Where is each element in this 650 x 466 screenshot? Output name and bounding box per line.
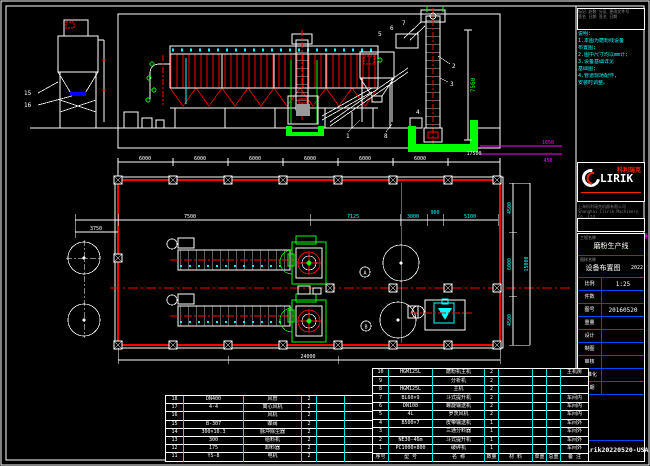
bom-cell [533, 377, 547, 385]
bom-cell [499, 411, 533, 419]
pit-dims: 1650 450 [480, 140, 562, 164]
bom-cell: 175 [184, 445, 244, 453]
logo-underline [581, 192, 641, 193]
bom-cell [547, 377, 561, 385]
bom-cell [547, 419, 561, 427]
bom-cell: 12 [166, 445, 184, 453]
bom-cell: 2 [485, 402, 499, 410]
bom-row: 3三通分料器1车间外 [373, 428, 589, 436]
bom-cell: 9 [373, 377, 389, 385]
bom-cell [317, 428, 345, 436]
bom-cell: 2 [302, 436, 317, 444]
company-info: 上海科利瑞克机器有限公司 Shanghai Clirik Machinery C… [578, 204, 644, 219]
svg-text:4500: 4500 [507, 314, 513, 326]
svg-text:6000: 6000 [414, 156, 426, 162]
bom-cell: 15 [166, 420, 184, 428]
bom-cell: 破碎机 [433, 445, 485, 453]
bom-cell [533, 436, 547, 444]
bom-cell [389, 428, 433, 436]
svg-text:450: 450 [543, 158, 552, 164]
bom-cell [499, 394, 533, 402]
bom-cell: 16 [166, 412, 184, 420]
svg-text:6: 6 [390, 25, 394, 32]
bom-cell [561, 377, 589, 385]
bom-header-cell: 数量 [485, 453, 499, 461]
elevator-plan [408, 299, 472, 330]
bom-cell: 主机 [433, 385, 485, 393]
bom-cell: 7 [373, 394, 389, 402]
bom-cell [533, 369, 547, 377]
field-value: 设备布置图 [578, 263, 628, 273]
bom-row: 13300给料机2 [166, 436, 373, 444]
svg-text:6000: 6000 [139, 156, 151, 162]
field-value [602, 317, 644, 330]
bom-cell: 3 [373, 428, 389, 436]
bom-cell [345, 436, 373, 444]
svg-text:6000: 6000 [249, 156, 261, 162]
bom-cell [499, 377, 533, 385]
plan-view: 6000 6000 6000 6000 6000 6000 17500 [66, 151, 572, 364]
bom-cell: 车间外 [561, 428, 589, 436]
field-value: 磨粉生产线 [578, 241, 644, 251]
bom-cell: 4L [389, 411, 433, 419]
bom-row: 10HGM125L磨粉机主机2主机房 [373, 369, 589, 377]
bom-cell [345, 453, 373, 461]
bom-row: 16风机2 [166, 412, 373, 420]
bom-cell: 给料机 [244, 436, 302, 444]
bom-cell [317, 453, 345, 461]
bom-cell: 11 [166, 453, 184, 461]
svg-text:15000: 15000 [524, 256, 530, 271]
bom-cell [499, 385, 533, 393]
sign-label: 设计 [578, 330, 602, 343]
bom-cell: B-307 [184, 420, 244, 428]
sign-value [602, 330, 644, 343]
bom-cell [533, 445, 547, 453]
bom-cell: 斗式提升机 [433, 436, 485, 444]
bom-cell: 车间外 [561, 445, 589, 453]
elevator-pit [408, 120, 478, 152]
bom-row: 9分析机2 [373, 377, 589, 385]
revision-box: 标记 处数 分区 更改文件号 签名 日期 签名 日期 [577, 8, 645, 30]
bom-cell [547, 445, 561, 453]
bom-cell [345, 412, 373, 420]
bom-cell: 2 [485, 377, 499, 385]
discharge-valve [70, 92, 86, 96]
plan-bottom-dims: 24000 [118, 348, 500, 364]
svg-text:900: 900 [430, 210, 439, 216]
bom-cell: 6 [373, 402, 389, 410]
bom-cell: 斗式提升机 [433, 394, 485, 402]
bom-cell [345, 445, 373, 453]
bom-cell [499, 436, 533, 444]
note-line: 3.设备基础详见 [578, 59, 644, 66]
field-value: 20160520 [602, 304, 644, 317]
bom-cell: 2 [302, 412, 317, 420]
bom-cell [547, 428, 561, 436]
bom-cell: 2 [485, 385, 499, 393]
bom-cell: 13 [166, 436, 184, 444]
notes-block: 说明:1.本图为磨粉线设备 布置图;2.图中尺寸均以mm计;3.设备基础详见 基… [578, 31, 644, 87]
sign-label: 制图 [578, 343, 602, 356]
bom-cell [547, 402, 561, 410]
bom-header-cell: 序号 [373, 453, 389, 461]
bom-cell: 2 [302, 420, 317, 428]
bom-table-left: 18DN400风管2主机房174-4离心风机2主机房16风机215B-307蝶阀… [165, 395, 373, 462]
bom-row: 7BL60×9斗式提升机2车间内 [373, 394, 589, 402]
bom-cell: BL60×9 [389, 394, 433, 402]
cad-sheet: 7560 1650 450 1 2 3 4 5 6 7 8 15 16 [0, 0, 650, 466]
bom-cell: 主机房 [561, 369, 589, 377]
bom-cell [317, 436, 345, 444]
svg-text:A: A [363, 271, 366, 277]
pump-plan-2 [313, 288, 321, 294]
logo-chinese: 科利瑞克 [617, 165, 641, 174]
bom-header-row: 序号型 号名 称数量材 料单重总重备 注 [373, 453, 589, 461]
svg-text:1650: 1650 [542, 140, 554, 146]
note-line: 4.管道现场配作, [578, 73, 644, 80]
svg-text:3750: 3750 [90, 226, 102, 232]
logo-box: LIRIK 科利瑞克 [577, 162, 645, 202]
bom-cell: 4-4 [184, 404, 244, 412]
field-label: 图号 [578, 304, 602, 317]
field-value: 1:25 [602, 278, 644, 291]
bom-cell [533, 402, 547, 410]
svg-text:B: B [364, 325, 367, 331]
svg-text:6000: 6000 [507, 258, 513, 270]
bom-cell [533, 394, 547, 402]
note-line: 1.本图为磨粉线设备 [578, 38, 644, 45]
bom-row: 18DN400风管2主机房 [166, 396, 373, 404]
bom-cell: 5 [373, 411, 389, 419]
svg-text:6000: 6000 [194, 156, 206, 162]
bom-cell [499, 428, 533, 436]
svg-text:16: 16 [24, 102, 32, 109]
bom-cell: 三通分料器 [433, 428, 485, 436]
bom-row: 14300×10.3脉冲除尘器2 [166, 428, 373, 436]
field-value [602, 291, 644, 304]
revision-row: 签名 日期 签名 日期 [578, 14, 644, 19]
svg-text:1: 1 [346, 133, 350, 140]
bom-row: 12175卸料器2主机房 [166, 445, 373, 453]
filter-train-2 [167, 294, 296, 326]
bom-cell [345, 420, 373, 428]
bom-cell [345, 396, 373, 404]
bom-cell: 电机 [244, 453, 302, 461]
svg-text:4500: 4500 [507, 202, 513, 214]
svg-text:7500: 7500 [184, 214, 196, 220]
plan-right-dims: 4500 6000 4500 15000 [507, 183, 530, 345]
bom-row: 1PC1000×800破碎机1车间外 [373, 445, 589, 453]
bom-cell [547, 394, 561, 402]
bom-cell [547, 436, 561, 444]
bom-cell: 离心风机 [244, 404, 302, 412]
bom-cell: 10 [373, 369, 389, 377]
sign-value [602, 369, 644, 382]
bom-cell: 蝶阀 [244, 420, 302, 428]
filter-hoppers [170, 88, 378, 106]
bom-cell: 车间外 [561, 419, 589, 427]
bom-header-cell: 总重 [547, 453, 561, 461]
bom-cell [533, 428, 547, 436]
bom-cell [389, 377, 433, 385]
bom-cell: 2 [302, 428, 317, 436]
bom-row: 4B500×7皮带输送机1车间外 [373, 419, 589, 427]
note-line: 2.图中尺寸均以mm计; [578, 52, 644, 59]
bom-header-cell: 名 称 [433, 453, 485, 461]
scale-fields: 比例1:25件数图号20160520重量 [578, 278, 644, 330]
bom-cell [499, 369, 533, 377]
svg-text:4: 4 [416, 109, 420, 116]
bom-row: 6DN108螺旋输送机2车间内 [373, 402, 589, 410]
storage-silo [38, 20, 106, 128]
bom-cell: DN400 [184, 396, 244, 404]
bom-cell [317, 404, 345, 412]
pump-plan [298, 286, 310, 294]
bom-cell [345, 428, 373, 436]
bom-cell: PC1000×800 [389, 445, 433, 453]
bom-cell: 2 [373, 436, 389, 444]
bom-cell: 风机 [244, 412, 302, 420]
sign-value [602, 343, 644, 356]
bom-cell [561, 385, 589, 393]
bom-cell [317, 445, 345, 453]
bom-row: 8HGM125L主机2 [373, 385, 589, 393]
bom-cell: 300×10.3 [184, 428, 244, 436]
bom-cell: 2 [485, 411, 499, 419]
bom-cell: 脉冲除尘器 [244, 428, 302, 436]
bom-header-cell: 型 号 [389, 453, 433, 461]
note-line: 说明: [578, 31, 644, 38]
bom-cell: HGM125L [389, 369, 433, 377]
bom-cell [499, 419, 533, 427]
field-label: 重量 [578, 317, 602, 330]
bom-cell: 1 [373, 445, 389, 453]
filter-train-1 [167, 238, 296, 270]
bom-cell: DN108 [389, 402, 433, 410]
bom-cell: 1 [485, 445, 499, 453]
bom-cell: 螺旋输送机 [433, 402, 485, 410]
plan-mid-dims: 7500 7125 3000 900 5100 3750 [75, 210, 498, 238]
bom-cell [499, 402, 533, 410]
note-line: 基础图; [578, 66, 644, 73]
bom-cell: HGM125L [389, 385, 433, 393]
bom-row: 54L罗茨风机2车间内 [373, 411, 589, 419]
bom-cell: 罗茨风机 [433, 411, 485, 419]
axis-bubbles: A B [360, 267, 371, 331]
bom-cell: 2 [485, 394, 499, 402]
note-line: 布置图; [578, 45, 644, 52]
svg-text:8: 8 [384, 133, 388, 140]
bom-cell: 2 [485, 369, 499, 377]
bom-cell: 卸料器 [244, 445, 302, 453]
bom-cell: 风管 [244, 396, 302, 404]
svg-text:24000: 24000 [300, 354, 315, 360]
bom-cell [547, 411, 561, 419]
elevator-boot-pit [286, 126, 324, 136]
bom-cell: 1 [485, 436, 499, 444]
bom-header-cell: 备 注 [561, 453, 589, 461]
sign-value [602, 382, 644, 395]
svg-text:2: 2 [452, 63, 456, 70]
year-value: 2022 [631, 265, 643, 271]
dim-label: 7560 [470, 77, 477, 92]
bom-cell [533, 385, 547, 393]
bom-cell: 17 [166, 404, 184, 412]
svg-text:3: 3 [450, 81, 454, 88]
bom-cell: 1 [485, 428, 499, 436]
bom-cell: 车间内 [561, 394, 589, 402]
bom-table-right: 10HGM125L磨粉机主机2主机房9分析机28HGM125L主机27BL60×… [372, 368, 589, 462]
bom-cell: 皮带输送机 [433, 419, 485, 427]
bom-cell: 2 [302, 453, 317, 461]
bom-cell: 磨粉机主机 [433, 369, 485, 377]
bom-cell: 2 [302, 404, 317, 412]
bom-cell: YS-8 [184, 453, 244, 461]
drawing-name-cell: 图样名称 设备布置图 2022 [578, 256, 644, 278]
bom-cell: NE30-46m [389, 436, 433, 444]
svg-text:6000: 6000 [359, 156, 371, 162]
bom-cell: 车间内 [561, 411, 589, 419]
bom-cell [533, 411, 547, 419]
plan-silos-main [380, 183, 419, 343]
note-line: 安装时调整。 [578, 80, 644, 87]
bom-cell: 4 [373, 419, 389, 427]
bom-cell: 300 [184, 436, 244, 444]
spacer-box [577, 218, 645, 232]
bom-cell [345, 404, 373, 412]
field-label: 比例 [578, 278, 602, 291]
svg-text:5100: 5100 [464, 214, 476, 220]
bom-cell: 18 [166, 396, 184, 404]
bom-row: 174-4离心风机2主机房 [166, 404, 373, 412]
svg-text:5: 5 [378, 31, 382, 38]
bom-cell [184, 412, 244, 420]
bom-cell [499, 445, 533, 453]
bom-row: 2NE30-46m斗式提升机1车间外 [373, 436, 589, 444]
bom-row: 15B-307蝶阀2主机房 [166, 420, 373, 428]
bom-header-cell: 材 料 [499, 453, 533, 461]
bom-cell: 分析机 [433, 377, 485, 385]
project-name-cell: 工程名称 磨粉生产线 [578, 234, 644, 256]
bom-cell: 车间内 [561, 402, 589, 410]
svg-text:17500: 17500 [466, 151, 481, 157]
bom-cell [317, 420, 345, 428]
bom-row: 11YS-8电机2 [166, 453, 373, 461]
sign-value [602, 356, 644, 369]
bom-cell [317, 396, 345, 404]
bom-cell [547, 385, 561, 393]
bom-cell: B500×7 [389, 419, 433, 427]
bom-cell: 1 [485, 419, 499, 427]
elevation-view: 7560 1650 450 1 2 3 4 5 6 7 8 15 16 [24, 6, 562, 164]
bom-header-cell: 单重 [533, 453, 547, 461]
bom-cell: 8 [373, 385, 389, 393]
bom-cell: 车间外 [561, 436, 589, 444]
field-label: 件数 [578, 291, 602, 304]
svg-text:6000: 6000 [304, 156, 316, 162]
bom-cell [317, 412, 345, 420]
svg-text:3000: 3000 [407, 214, 419, 220]
svg-text:7: 7 [402, 20, 406, 27]
svg-text:15: 15 [24, 90, 32, 97]
bom-cell: 14 [166, 428, 184, 436]
bom-cell [533, 419, 547, 427]
mill-motor [296, 104, 310, 116]
bom-cell [547, 369, 561, 377]
plan-top-dims: 6000 6000 6000 6000 6000 6000 17500 [118, 151, 500, 178]
bag-filter [124, 46, 382, 128]
plan-silos-left [66, 240, 102, 338]
bom-cell: 2 [302, 396, 317, 404]
bom-cell: 2 [302, 445, 317, 453]
svg-text:7125: 7125 [347, 214, 359, 220]
